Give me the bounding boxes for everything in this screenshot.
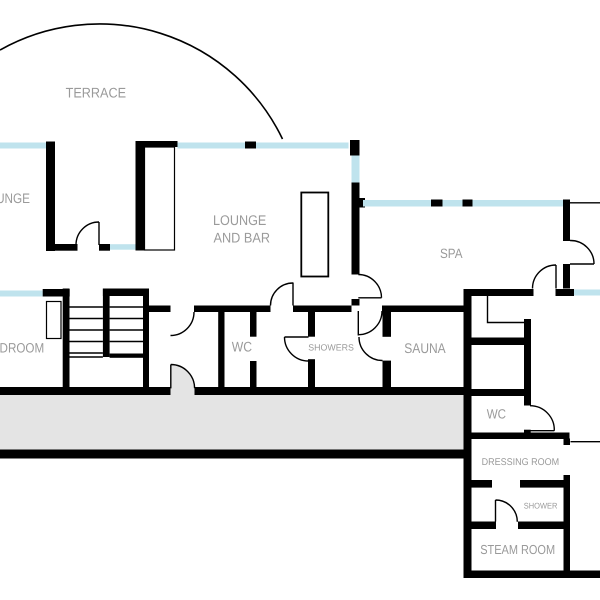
svg-text:TERRACE: TERRACE — [66, 85, 127, 101]
svg-text:AND BAR: AND BAR — [214, 230, 271, 246]
svg-text:STEAM ROOM: STEAM ROOM — [480, 542, 555, 557]
svg-text:LOUNGE: LOUNGE — [0, 191, 30, 206]
svg-text:SPA: SPA — [440, 246, 463, 261]
svg-text:SHOWER: SHOWER — [524, 501, 558, 510]
svg-text:BEDROOM: BEDROOM — [0, 341, 44, 356]
svg-text:SHOWERS: SHOWERS — [308, 343, 354, 353]
svg-text:SAUNA: SAUNA — [404, 340, 446, 356]
svg-text:DRESSING ROOM: DRESSING ROOM — [482, 457, 560, 468]
svg-text:WC: WC — [487, 406, 507, 421]
svg-text:WC: WC — [232, 339, 252, 355]
svg-text:LOUNGE: LOUNGE — [213, 212, 266, 228]
